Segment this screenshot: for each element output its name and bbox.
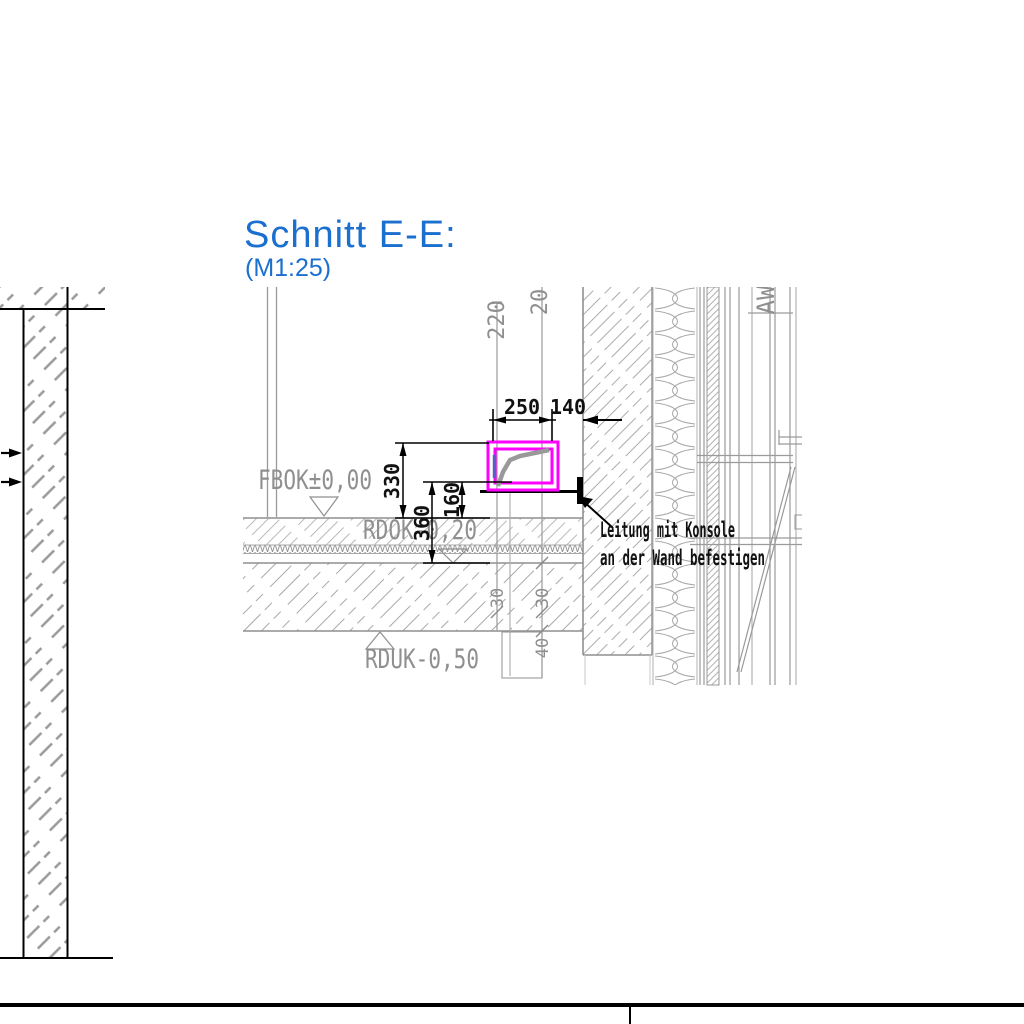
exterior-wall-hatch <box>583 287 652 655</box>
dim-160-label: 160 <box>440 482 464 518</box>
annotation-line2: an der Wand befestigen <box>600 546 765 570</box>
level-marker-icon <box>310 497 338 516</box>
impact-insulation-layer <box>243 546 583 554</box>
left-wall-hatch <box>23 309 68 958</box>
left-wall-top-hatch <box>0 287 105 309</box>
cable-bend <box>498 450 549 486</box>
dim-30-label: 30 <box>533 588 553 608</box>
dim-330-label: 330 <box>380 463 404 499</box>
dim-360-label: 360 <box>410 505 434 541</box>
arrow-icon <box>9 478 22 487</box>
wall-tag-label: AW <box>752 285 780 314</box>
arrow-icon <box>9 449 22 458</box>
cad-drawing: AW 220 20 30 30 40 <box>0 0 1024 1024</box>
titleblock-divider <box>629 1007 631 1024</box>
concrete-slab <box>243 563 583 631</box>
level-fbok-label: FBOK±0,00 <box>258 465 372 496</box>
facade-cladding <box>690 287 805 685</box>
left-wall-section <box>0 287 113 958</box>
dim-220-label: 220 <box>485 300 510 340</box>
wall-pointer-arrows <box>1 449 22 487</box>
exterior-wall <box>583 287 652 685</box>
facade-insulation <box>653 287 697 685</box>
annotation-line1: Leitung mit Konsole <box>600 518 735 542</box>
cladding-board <box>707 287 719 685</box>
level-rduk-label: RDUK-0,50 <box>365 644 479 675</box>
insulation-loops <box>653 287 697 685</box>
dim-140-label: 140 <box>550 395 586 419</box>
titleblock-top-border <box>0 1003 1024 1007</box>
dim-30-label: 30 <box>488 588 508 608</box>
dim-250-label: 250 <box>504 395 540 419</box>
detail-view: AW 220 20 30 30 40 <box>243 285 805 685</box>
dim-20-label: 20 <box>528 289 553 316</box>
dim-40-label: 40 <box>533 638 553 658</box>
drawing-sheet: Schnitt E-E: (M1:25) <box>0 0 1024 1024</box>
